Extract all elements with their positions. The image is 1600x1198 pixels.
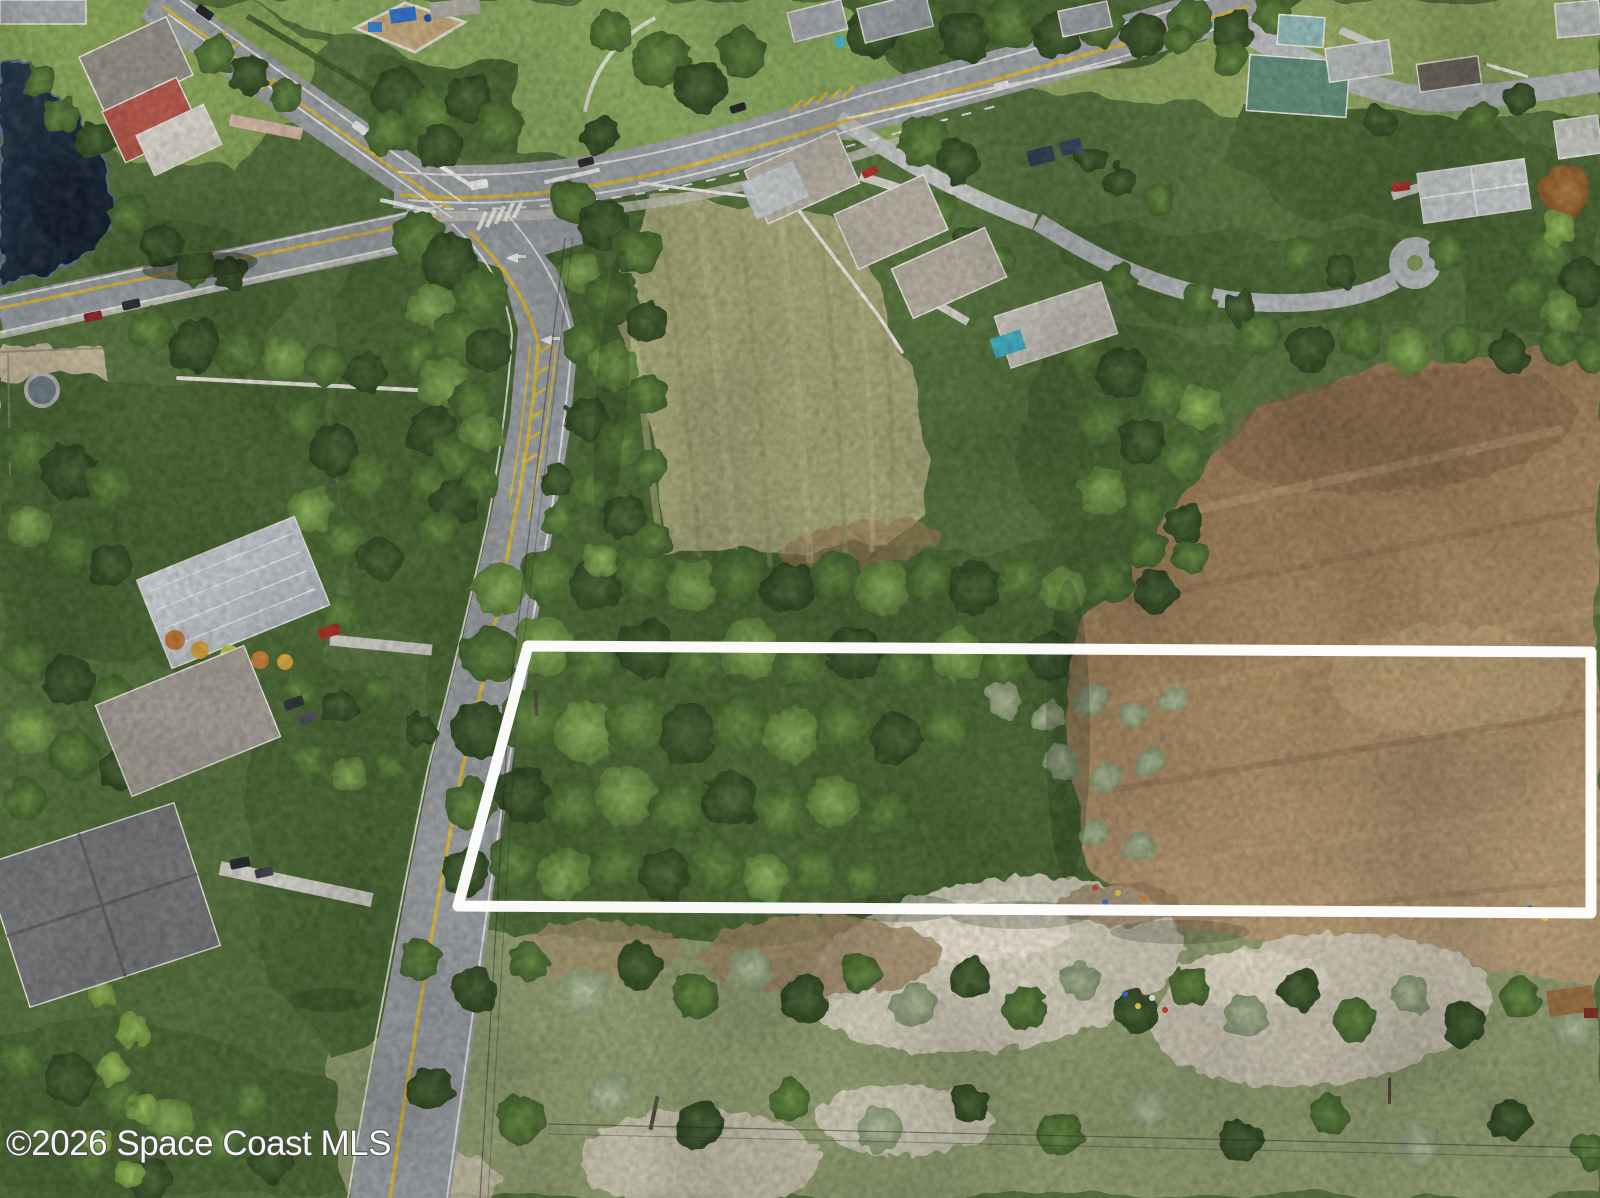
texture-grain-light — [0, 0, 1600, 1198]
watermark: ©2026 Space Coast MLS — [6, 1124, 391, 1163]
aerial-photo-canvas: ©2026 Space Coast MLS — [0, 0, 1600, 1198]
aerial-photo: ©2026 Space Coast MLS — [0, 0, 1600, 1198]
